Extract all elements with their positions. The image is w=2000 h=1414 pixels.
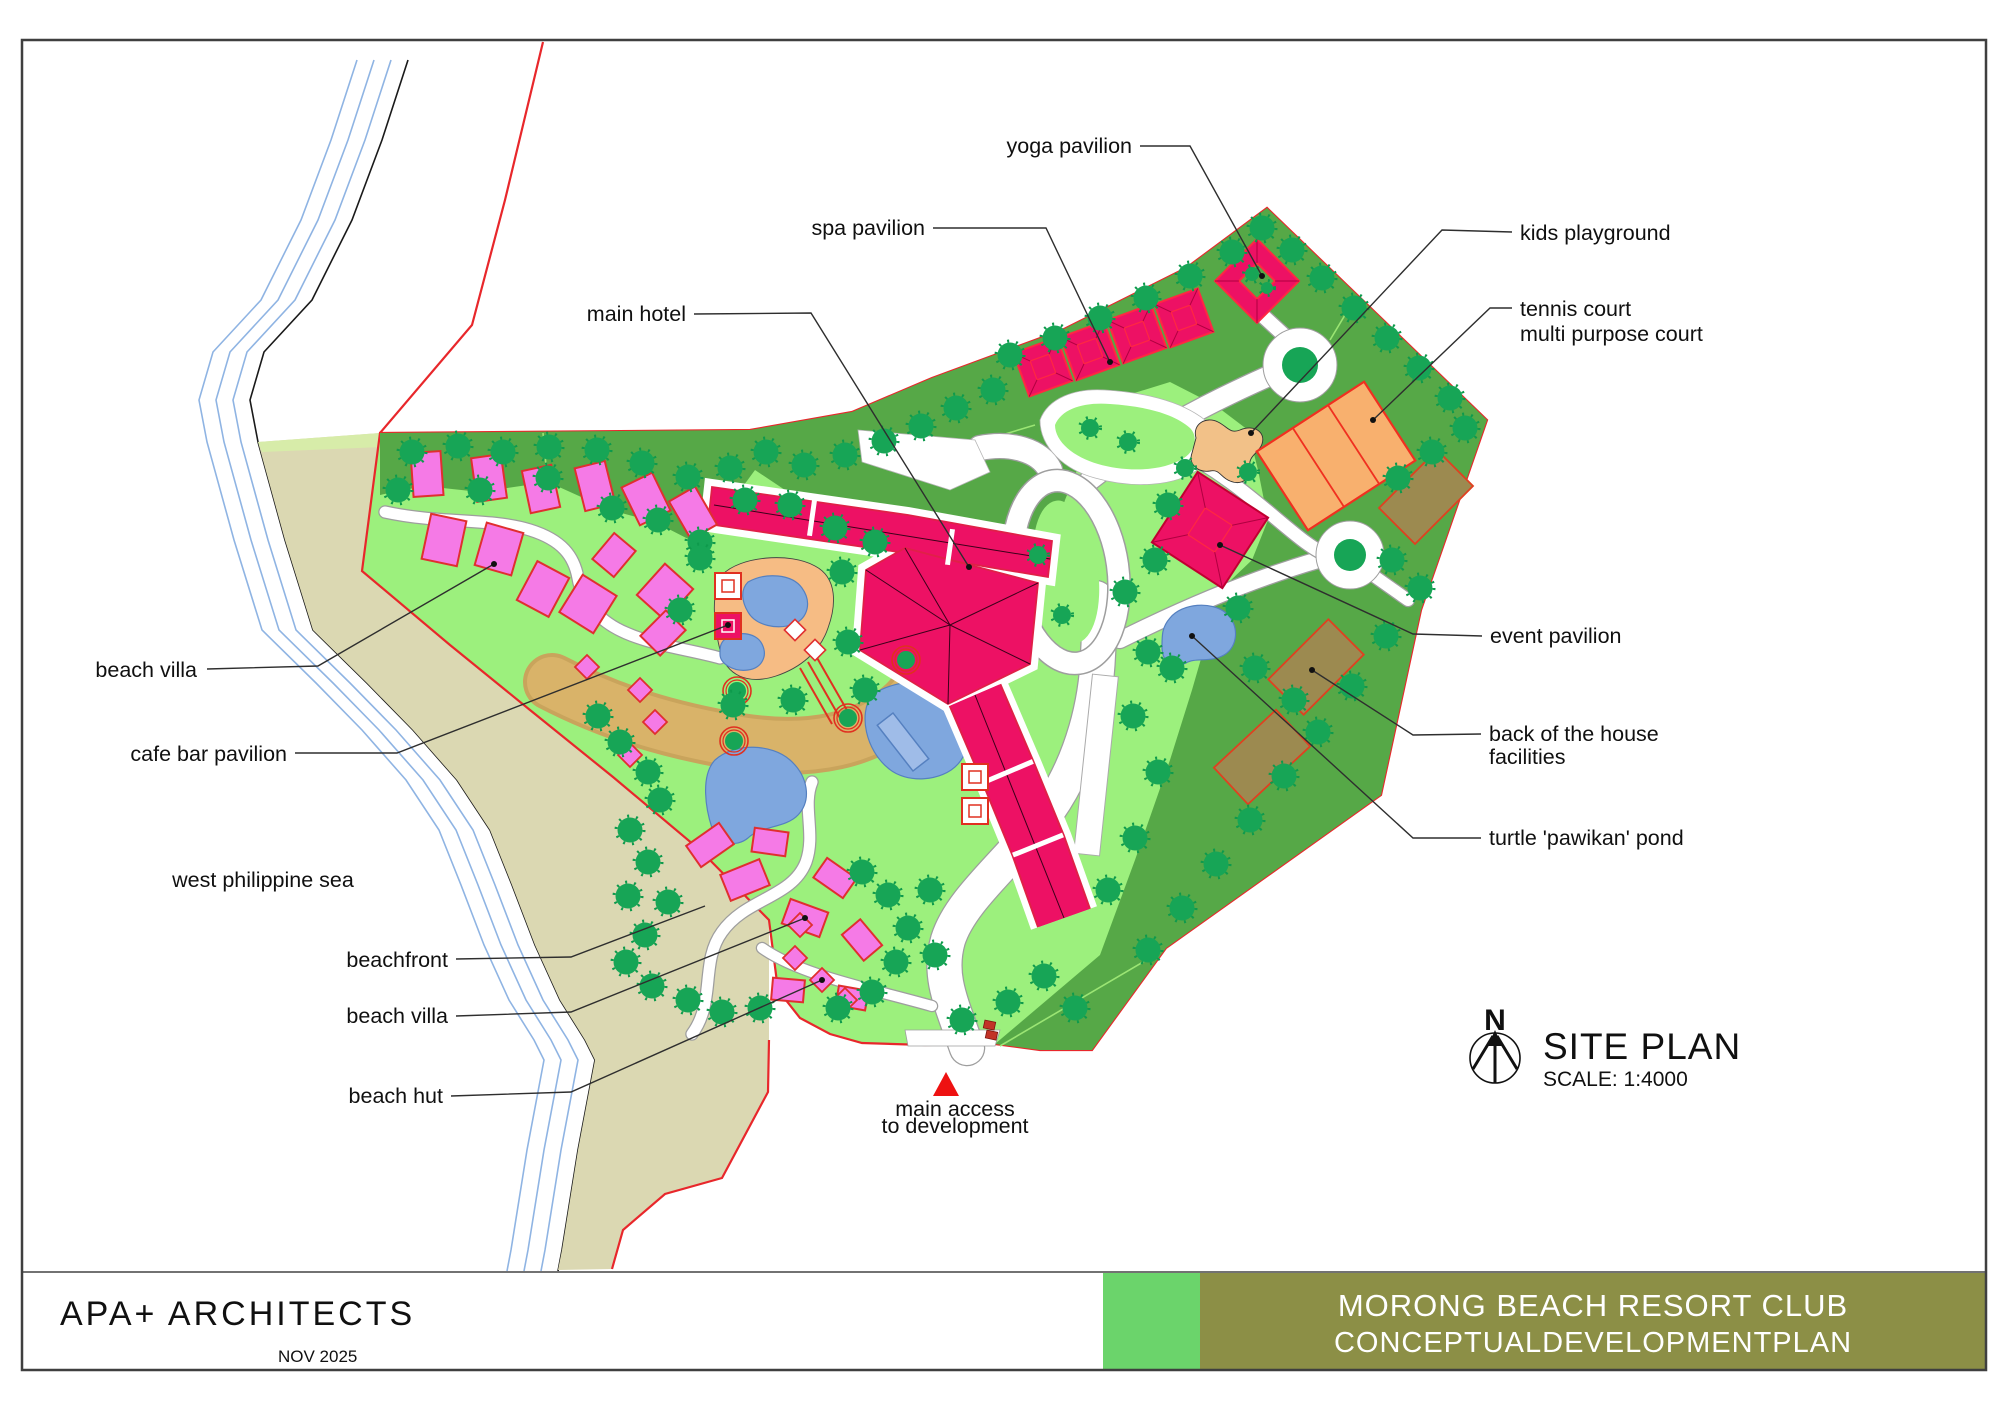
tree xyxy=(792,453,817,478)
label-beachfront: beachfront xyxy=(346,948,448,972)
tree xyxy=(1386,466,1411,491)
tree xyxy=(1453,416,1478,441)
tree xyxy=(733,488,758,513)
tree xyxy=(1081,419,1099,437)
tree xyxy=(1408,576,1433,601)
tree xyxy=(1272,764,1297,789)
tree xyxy=(833,443,858,468)
tree xyxy=(781,688,806,713)
tree xyxy=(778,493,803,518)
tree xyxy=(1170,896,1195,921)
label-main-access: main accessto development xyxy=(881,1097,1028,1138)
issue-date: NOV 2025 xyxy=(278,1347,357,1366)
title-bar-green-block xyxy=(1103,1273,1200,1369)
tree xyxy=(1306,720,1331,745)
tree xyxy=(608,730,633,755)
tree xyxy=(1282,688,1307,713)
tree xyxy=(1380,548,1405,573)
leader-dot xyxy=(802,915,808,921)
tree xyxy=(981,378,1006,403)
tree xyxy=(998,343,1023,368)
tree xyxy=(996,990,1021,1015)
tree xyxy=(1143,548,1168,573)
project-subtitle: CONCEPTUALDEVELOPMENTPLAN xyxy=(1334,1327,1852,1359)
label-back-of-house: back of the housefacilities xyxy=(1489,722,1659,769)
label-beach-villa-lower: beach villa xyxy=(346,1004,448,1028)
roundabout-upper xyxy=(1263,328,1337,402)
tree xyxy=(630,451,655,476)
tree xyxy=(944,396,969,421)
tree xyxy=(1160,656,1185,681)
architect-firm: APA+ ARCHITECTS xyxy=(60,1295,415,1333)
label-beach-villa-upper: beach villa xyxy=(95,658,197,682)
tree xyxy=(836,630,861,655)
label-main-hotel: main hotel xyxy=(587,302,686,326)
label-yoga-pavilion: yoga pavilion xyxy=(1006,134,1132,158)
tree xyxy=(1280,238,1305,263)
leader-dot xyxy=(966,564,972,570)
tree xyxy=(1420,440,1445,465)
tree xyxy=(1123,826,1148,851)
tree xyxy=(826,996,851,1021)
tree xyxy=(1342,296,1367,321)
tree xyxy=(853,678,878,703)
leader-dot xyxy=(1259,273,1265,279)
site-plan-sheet: yoga pavilion spa pavilion main hotel ki… xyxy=(0,0,2000,1414)
main-access-arrow xyxy=(933,1072,959,1096)
tree xyxy=(923,943,948,968)
tree xyxy=(1438,386,1463,411)
tree xyxy=(636,760,661,785)
leader-dot xyxy=(1248,430,1254,436)
tree xyxy=(1243,656,1268,681)
tree xyxy=(918,878,943,903)
leader-dot xyxy=(491,561,497,567)
tree xyxy=(1088,306,1113,331)
tree xyxy=(850,860,875,885)
tree xyxy=(1239,463,1257,481)
tree xyxy=(600,496,625,521)
tree xyxy=(1134,286,1159,311)
tree xyxy=(536,466,561,491)
label-tennis-court: tennis courtmulti purpose court xyxy=(1520,297,1703,346)
tree xyxy=(1096,878,1121,903)
tree xyxy=(1374,624,1399,649)
leader-dot xyxy=(1107,359,1113,365)
tree xyxy=(614,950,639,975)
tree xyxy=(860,980,885,1005)
label-beach-hut: beach hut xyxy=(349,1084,443,1108)
tree xyxy=(1063,996,1088,1021)
tree xyxy=(668,598,693,623)
tree xyxy=(386,478,411,503)
tree xyxy=(1029,546,1047,564)
tree xyxy=(676,988,701,1013)
leader-dot xyxy=(725,622,731,628)
tree xyxy=(616,884,641,909)
tree xyxy=(491,440,516,465)
leader-dot xyxy=(1370,417,1376,423)
tree xyxy=(896,916,921,941)
tree xyxy=(1220,240,1245,265)
tree xyxy=(1204,852,1229,877)
label-turtle-pond: turtle 'pawikan' pond xyxy=(1489,826,1684,850)
beach-villa xyxy=(751,828,788,856)
tree xyxy=(863,530,888,555)
tree xyxy=(1245,267,1259,281)
tree xyxy=(1053,606,1071,624)
pool-cabana xyxy=(962,764,988,790)
tree xyxy=(1136,640,1161,665)
tree xyxy=(1146,760,1171,785)
tree xyxy=(618,818,643,843)
tree xyxy=(909,414,934,439)
tree xyxy=(1121,704,1146,729)
tree xyxy=(721,693,746,718)
project-title: MORONG BEACH RESORT CLUB xyxy=(1338,1288,1848,1323)
leader-dot xyxy=(1309,667,1315,673)
tree xyxy=(1250,216,1275,241)
tree xyxy=(585,438,610,463)
tree xyxy=(1043,326,1068,351)
plan-title: SITE PLAN xyxy=(1543,1026,1741,1067)
tree xyxy=(1176,459,1194,477)
tree xyxy=(1119,433,1137,451)
leader-dot xyxy=(1217,542,1223,548)
plan-scale: SCALE: 1:4000 xyxy=(1543,1068,1688,1091)
tree xyxy=(830,560,855,585)
tree xyxy=(1310,266,1335,291)
tree xyxy=(950,1008,975,1033)
pool-cabana xyxy=(962,798,988,824)
tree xyxy=(1226,596,1251,621)
north-arrow xyxy=(1470,1030,1520,1083)
tree xyxy=(1178,264,1203,289)
tree xyxy=(718,456,743,481)
tree xyxy=(884,950,909,975)
tree xyxy=(468,478,493,503)
roundabout-lower xyxy=(1316,521,1384,589)
title-bar: MORONG BEACH RESORT CLUB CONCEPTUALDEVEL… xyxy=(22,1272,1986,1369)
tree xyxy=(636,850,661,875)
tree xyxy=(876,883,901,908)
label-event-pavilion: event pavilion xyxy=(1490,624,1621,648)
leader-dot xyxy=(1189,633,1195,639)
tree xyxy=(537,435,562,460)
north-letter: N xyxy=(1484,1004,1506,1037)
label-kids-playground: kids playground xyxy=(1520,221,1671,245)
tree xyxy=(676,465,701,490)
label-west-philippine-sea: west philippine sea xyxy=(171,868,354,892)
label-spa-pavilion: spa pavilion xyxy=(811,216,925,240)
tree xyxy=(823,516,848,541)
tree xyxy=(1238,808,1263,833)
tree xyxy=(400,440,425,465)
tree xyxy=(656,890,681,915)
tree xyxy=(1113,580,1138,605)
tree xyxy=(586,704,611,729)
label-cafe-bar-pavilion: cafe bar pavilion xyxy=(130,742,287,766)
pool-cabana xyxy=(715,573,741,599)
tree xyxy=(648,788,673,813)
tree xyxy=(1340,674,1365,699)
tree xyxy=(688,546,713,571)
tree xyxy=(754,440,779,465)
tree xyxy=(640,974,665,999)
tree xyxy=(1261,282,1273,294)
tree xyxy=(446,434,471,459)
tree xyxy=(1156,493,1181,518)
tree xyxy=(1375,326,1400,351)
tree xyxy=(1136,938,1161,963)
tree xyxy=(646,508,671,533)
tree xyxy=(1032,964,1057,989)
tree xyxy=(872,429,897,454)
leader-dot xyxy=(819,977,825,983)
